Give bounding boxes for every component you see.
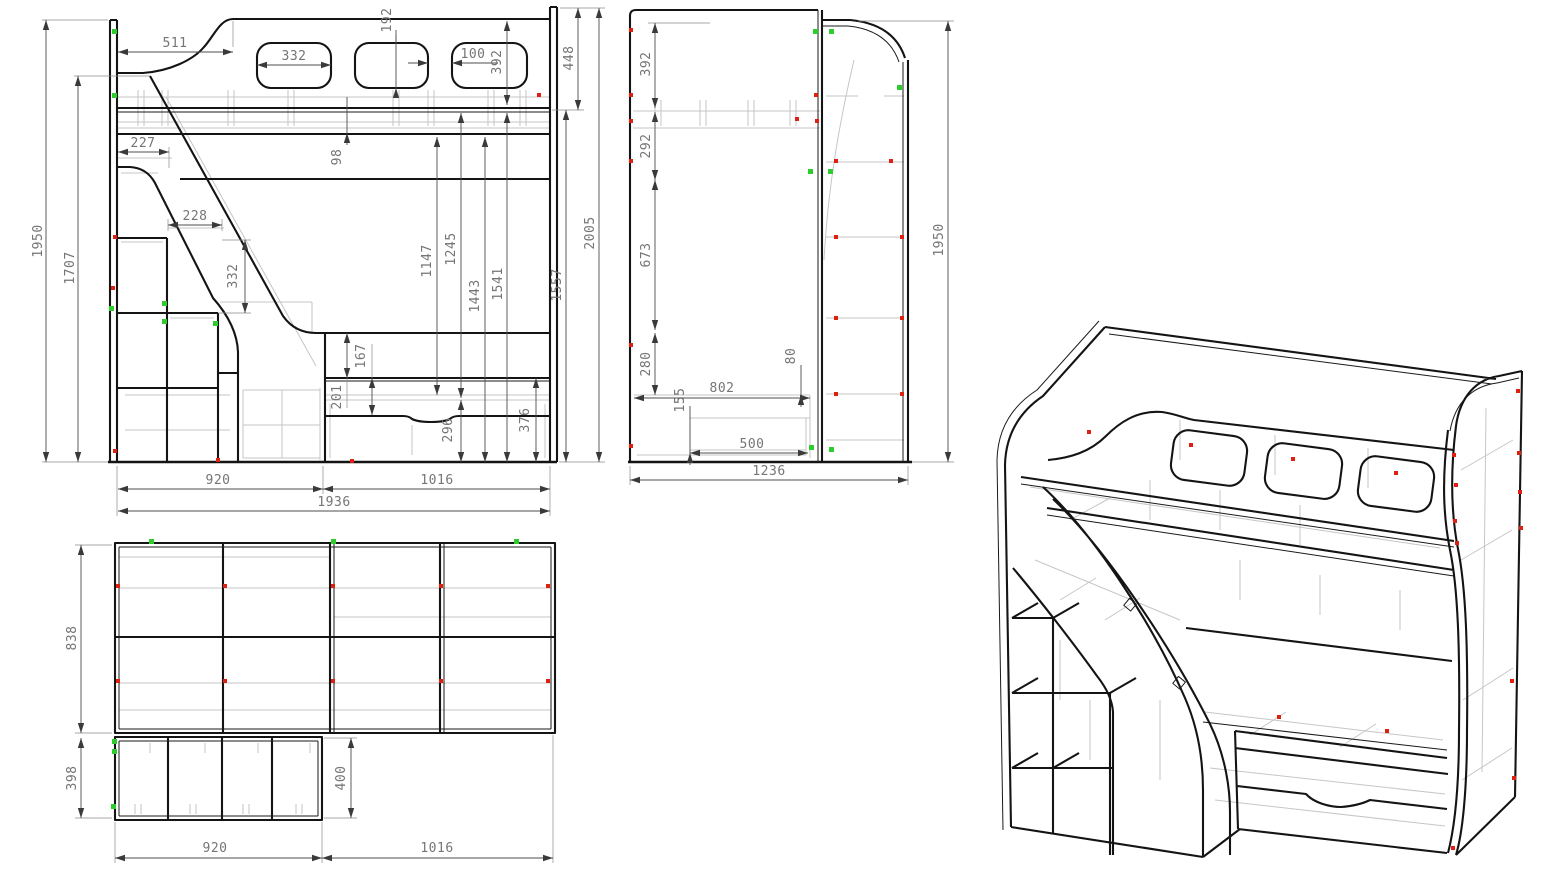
svg-text:1245: 1245 [444,232,459,265]
svg-text:400: 400 [334,766,349,791]
svg-text:398: 398 [65,766,80,791]
svg-text:280: 280 [639,352,654,377]
svg-text:1950: 1950 [932,223,947,256]
svg-text:80: 80 [784,348,799,365]
svg-text:838: 838 [65,626,80,651]
svg-text:392: 392 [490,50,505,75]
svg-text:802: 802 [710,381,735,396]
svg-text:227: 227 [131,136,156,151]
svg-text:500: 500 [740,437,765,452]
svg-text:332: 332 [226,264,241,289]
svg-text:448: 448 [562,46,577,71]
svg-text:1541: 1541 [491,267,506,300]
svg-text:1557: 1557 [550,268,565,301]
svg-text:920: 920 [206,473,231,488]
technical-drawing-canvas: 1950 1707 511 227 228 332 3 [0,0,1549,872]
svg-text:2005: 2005 [583,216,598,249]
cad-drawing-page: 1950 1707 511 227 228 332 3 [0,0,1549,872]
svg-text:1936: 1936 [317,495,350,510]
svg-text:511: 511 [163,36,188,51]
svg-text:1443: 1443 [468,279,483,312]
svg-text:392: 392 [639,52,654,77]
svg-text:292: 292 [639,134,654,159]
dim-label: 1950 [31,224,46,257]
svg-text:296: 296 [441,418,456,443]
svg-text:155: 155 [673,388,688,413]
svg-text:1016: 1016 [420,473,453,488]
svg-text:376: 376 [518,408,533,433]
svg-text:98: 98 [330,149,345,166]
svg-text:673: 673 [639,243,654,268]
svg-text:1147: 1147 [420,244,435,277]
svg-text:920: 920 [203,841,228,856]
svg-text:332: 332 [282,49,307,64]
svg-text:1707: 1707 [63,251,78,284]
svg-text:100: 100 [461,47,486,62]
svg-text:201: 201 [330,385,345,410]
svg-text:1016: 1016 [420,841,453,856]
svg-text:228: 228 [183,209,208,224]
svg-text:1236: 1236 [752,464,785,479]
svg-text:167: 167 [354,344,369,369]
svg-text:192: 192 [380,8,395,33]
